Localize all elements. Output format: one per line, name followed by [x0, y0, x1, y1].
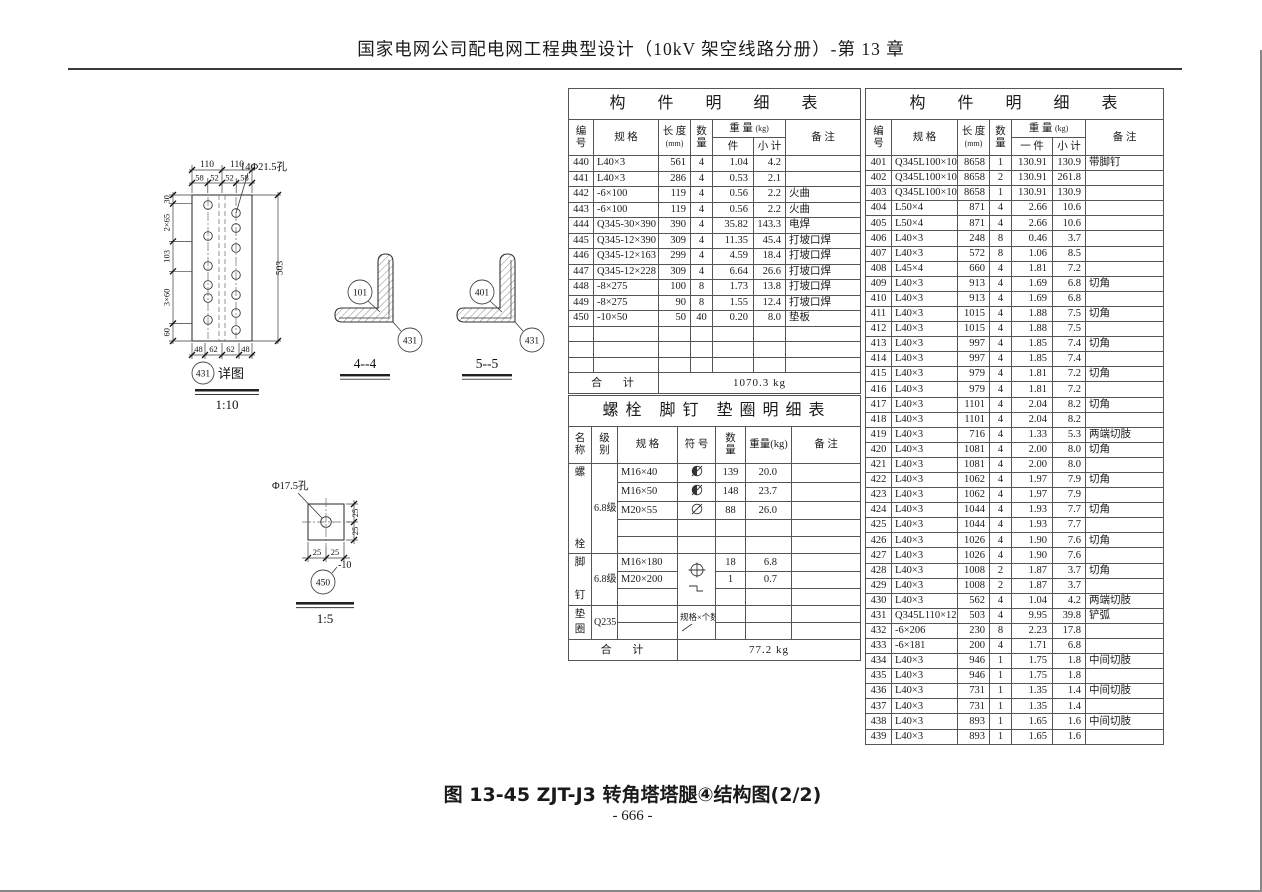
cell [754, 357, 786, 373]
table-row: 433-6×18120041.716.8 [866, 639, 1164, 654]
cell: Q345L100×10 [892, 171, 958, 186]
cell: 130.91 [1012, 171, 1053, 186]
cell: 429 [866, 578, 892, 593]
cell: 299 [659, 249, 691, 265]
cell: 997 [958, 352, 990, 367]
symbol-cell [678, 482, 716, 501]
cell: L40×3 [892, 714, 958, 729]
cell: L40×3 [892, 593, 958, 608]
total-label: 合 计 [569, 639, 678, 660]
cell: 2.04 [1012, 397, 1053, 412]
cell: 871 [958, 201, 990, 216]
table-row: 401Q345L100×1086581130.91130.9带脚钉 [866, 156, 1164, 171]
cell: L40×3 [594, 171, 659, 187]
cell [618, 588, 678, 605]
cell: 405 [866, 216, 892, 231]
cell: 打坡口焊 [786, 280, 861, 296]
cell: -8×275 [594, 280, 659, 296]
cell [792, 501, 861, 520]
cell: Q345-30×390 [594, 218, 659, 234]
svg-text:25: 25 [331, 547, 340, 557]
cell: 18.4 [754, 249, 786, 265]
cell: 1.65 [1012, 729, 1053, 744]
cell [1086, 352, 1164, 367]
cell: L40×3 [892, 246, 958, 261]
cell: 45.4 [754, 233, 786, 249]
cell: 5.3 [1053, 427, 1086, 442]
cell: L40×3 [892, 518, 958, 533]
cell: 428 [866, 563, 892, 578]
balloon-431: 431 [196, 370, 211, 380]
cell: 切角 [1086, 472, 1164, 487]
cell: 503 [958, 608, 990, 623]
cell: 1.75 [1012, 669, 1053, 684]
cell: 7.7 [1053, 503, 1086, 518]
svg-text:25: 25 [350, 509, 360, 518]
cell: 148 [716, 482, 746, 501]
cell: 4 [691, 218, 713, 234]
cell: -6×100 [594, 202, 659, 218]
cell: 426 [866, 533, 892, 548]
cell: 417 [866, 397, 892, 412]
cell: 871 [958, 216, 990, 231]
cell [786, 342, 861, 358]
cell: 两端切肢 [1086, 593, 1164, 608]
cell: 893 [958, 729, 990, 744]
cell: 407 [866, 246, 892, 261]
cell: 130.9 [1053, 156, 1086, 171]
cell: 731 [958, 699, 990, 714]
cell: Q345L110×12 [892, 608, 958, 623]
cell: 2.00 [1012, 457, 1053, 472]
cell: 8.0 [1053, 457, 1086, 472]
svg-text:52: 52 [225, 173, 234, 183]
cell [1086, 171, 1164, 186]
group-grade: 6.8级 [592, 554, 618, 605]
cell [1086, 699, 1164, 714]
cell: M16×180 [618, 554, 678, 571]
cell [716, 622, 746, 639]
cell: Q345-12×163 [594, 249, 659, 265]
cell: 7.2 [1053, 367, 1086, 382]
cell: L50×4 [892, 201, 958, 216]
total-value: 1070.3 kg [659, 373, 861, 394]
svg-text:62: 62 [209, 344, 218, 354]
cell: 8 [691, 280, 713, 296]
cell [786, 156, 861, 172]
cell: 419 [866, 427, 892, 442]
col-header: 件 [713, 138, 754, 156]
cell: 4 [990, 352, 1012, 367]
cell: 20.0 [746, 464, 792, 483]
cell: 1044 [958, 518, 990, 533]
cell: L40×3 [892, 548, 958, 563]
cell [1086, 488, 1164, 503]
cell: 35.82 [713, 218, 754, 234]
cell: 442 [569, 187, 594, 203]
cell: 449 [569, 295, 594, 311]
table-row: 440L40×356141.044.2 [569, 156, 861, 172]
svg-text:503: 503 [276, 261, 286, 276]
cell: 414 [866, 352, 892, 367]
cell: 0.20 [713, 311, 754, 327]
cell: M20×200 [618, 571, 678, 588]
cell: 7.5 [1053, 322, 1086, 337]
cell: 1.71 [1012, 639, 1053, 654]
table-row: 409L40×391341.696.8切角 [866, 276, 1164, 291]
cell: 309 [659, 264, 691, 280]
cell: 572 [958, 246, 990, 261]
table-row: 437L40×373111.351.4 [866, 699, 1164, 714]
cell: 1.55 [713, 295, 754, 311]
cell [792, 588, 861, 605]
cell [1086, 457, 1164, 472]
cell: 893 [958, 714, 990, 729]
cell: 中间切肢 [1086, 654, 1164, 669]
cell [659, 342, 691, 358]
cell: 390 [659, 218, 691, 234]
table-title: 螺栓 脚钉 垫圈明细表 [569, 396, 861, 427]
cell [786, 357, 861, 373]
cell: 130.91 [1012, 156, 1053, 171]
col-header: 重 量 (kg) [1012, 120, 1086, 138]
cell: 铲弧 [1086, 608, 1164, 623]
cell [716, 537, 746, 554]
cell: 4 [990, 337, 1012, 352]
cell: 434 [866, 654, 892, 669]
col-header: 重 量 (kg) [713, 120, 786, 138]
cell: 440 [569, 156, 594, 172]
table-row: 428L40×3100821.873.7切角 [866, 563, 1164, 578]
table-row: 435L40×394611.751.8 [866, 669, 1164, 684]
cell: 39.8 [1053, 608, 1086, 623]
cell: 4.59 [713, 249, 754, 265]
cell [1086, 578, 1164, 593]
cell: 409 [866, 276, 892, 291]
cell: 415 [866, 367, 892, 382]
cell: 4 [990, 503, 1012, 518]
cell: L40×3 [892, 382, 958, 397]
cell: 1.33 [1012, 427, 1053, 442]
cell: 1.90 [1012, 533, 1053, 548]
cell: 1081 [958, 442, 990, 457]
table-header-row: 编 号规 格长 度(mm)数 量重 量 (kg)备 注 [866, 120, 1164, 138]
cell [716, 520, 746, 537]
table-row: 438L40×389311.651.6中间切肢 [866, 714, 1164, 729]
cell: 436 [866, 684, 892, 699]
table-row: 415L40×397941.817.2切角 [866, 367, 1164, 382]
cell: 4 [990, 442, 1012, 457]
cell: 17.8 [1053, 623, 1086, 638]
svg-text:101: 101 [353, 289, 368, 299]
cell [1086, 291, 1164, 306]
cell: 4 [990, 639, 1012, 654]
cell: 424 [866, 503, 892, 518]
bolt-symbol-icon [689, 464, 705, 478]
table-row: 446Q345-12×16329944.5918.4打坡口焊 [569, 249, 861, 265]
cell: L40×3 [892, 533, 958, 548]
cell: 2.66 [1012, 216, 1053, 231]
cell: 4.2 [754, 156, 786, 172]
cell: 切角 [1086, 337, 1164, 352]
col-header: 数 量 [716, 427, 746, 464]
col-header: 编 号 [569, 120, 594, 156]
cell: M16×40 [618, 464, 678, 483]
cell: 1 [716, 571, 746, 588]
cell [594, 357, 659, 373]
cell: 416 [866, 382, 892, 397]
cell: 913 [958, 276, 990, 291]
cell: 4 [990, 322, 1012, 337]
cell: 1.97 [1012, 472, 1053, 487]
cell: 447 [569, 264, 594, 280]
col-header: 重量(kg) [746, 427, 792, 464]
cell: 1 [990, 186, 1012, 201]
cell: 带脚钉 [1086, 156, 1164, 171]
cell: 1.93 [1012, 503, 1053, 518]
cell: 1044 [958, 503, 990, 518]
col-header: 规 格 [594, 120, 659, 156]
drawing-sheet: 国家电网公司配电网工程典型设计（10kV 架空线路分册）-第 13 章 14Φ2… [0, 0, 1262, 892]
cell: 4 [990, 488, 1012, 503]
svg-text:60: 60 [162, 328, 172, 337]
table-row: 443-6×10011940.562.2火曲 [569, 202, 861, 218]
cell: L40×3 [892, 397, 958, 412]
cell: -10×50 [594, 311, 659, 327]
table-row: 424L40×3104441.937.7切角 [866, 503, 1164, 518]
cell [691, 342, 713, 358]
cell: M20×55 [618, 501, 678, 520]
symbol-cell [678, 554, 716, 605]
detail-450-label: 450 -10 1:5 [296, 560, 354, 626]
table-row: 418L40×3110142.048.2 [866, 412, 1164, 427]
cell: 7.9 [1053, 472, 1086, 487]
col-header: 数 量 [990, 120, 1012, 156]
cell: 1.93 [1012, 518, 1053, 533]
cell: 286 [659, 171, 691, 187]
cell: 1026 [958, 548, 990, 563]
cell: 4 [990, 457, 1012, 472]
cell: 2.1 [754, 171, 786, 187]
cell [746, 588, 792, 605]
cell: -8×275 [594, 295, 659, 311]
cell: 1.73 [713, 280, 754, 296]
cell: 8.0 [754, 311, 786, 327]
cell: 切角 [1086, 397, 1164, 412]
cell [716, 588, 746, 605]
cell: L40×3 [892, 669, 958, 684]
cell: 1101 [958, 412, 990, 427]
cell: 0.56 [713, 202, 754, 218]
cell: 130.91 [1012, 186, 1053, 201]
svg-text:52: 52 [210, 173, 219, 183]
bolt-symbol-icon [689, 502, 705, 516]
plate-outline [192, 195, 252, 341]
cell: 433 [866, 639, 892, 654]
table-row: 407L40×357281.068.5 [866, 246, 1164, 261]
table-row: 432-6×20623082.2317.8 [866, 623, 1164, 638]
svg-text:110: 110 [230, 160, 244, 170]
cell: 411 [866, 306, 892, 321]
cell: 716 [958, 427, 990, 442]
cell: 1.69 [1012, 276, 1053, 291]
cell: 1.69 [1012, 291, 1053, 306]
cell: 4 [990, 291, 1012, 306]
svg-text:30: 30 [162, 195, 172, 204]
cell: 4 [990, 427, 1012, 442]
svg-text:103: 103 [162, 250, 172, 263]
cell: L45×4 [892, 261, 958, 276]
cell: 8 [990, 231, 1012, 246]
cell: L40×3 [892, 729, 958, 744]
cell: 1 [990, 156, 1012, 171]
cell: 1081 [958, 457, 990, 472]
cell [716, 605, 746, 622]
cell [792, 520, 861, 537]
table-row: 419L40×371641.335.3两端切肢 [866, 427, 1164, 442]
col-header: 小 计 [754, 138, 786, 156]
total-row: 合 计77.2 kg [569, 639, 861, 660]
cell: 432 [866, 623, 892, 638]
cell: 7.6 [1053, 533, 1086, 548]
table-title: 构 件 明 细 表 [866, 89, 1164, 120]
cell: 1.6 [1053, 729, 1086, 744]
page-number: - 666 - [85, 808, 1180, 825]
cell [1086, 382, 1164, 397]
cell: 6.64 [713, 264, 754, 280]
cell: 10.6 [1053, 201, 1086, 216]
scale-label: 1:10 [215, 397, 238, 412]
col-header: 长 度(mm) [958, 120, 990, 156]
table-row: 423L40×3106241.977.9 [866, 488, 1164, 503]
cell [594, 326, 659, 342]
cell [569, 342, 594, 358]
col-header: 级 别 [592, 427, 618, 464]
cell: 230 [958, 623, 990, 638]
cell: Q345L100×10 [892, 156, 958, 171]
cell: 421 [866, 457, 892, 472]
cell: 火曲 [786, 202, 861, 218]
cell [1086, 518, 1164, 533]
cell [618, 605, 678, 622]
cell [792, 482, 861, 501]
cell: 90 [659, 295, 691, 311]
hole-label: Φ17.5孔 [272, 479, 309, 492]
hole-label: 14Φ21.5孔 [240, 160, 288, 173]
cell: 450 [569, 311, 594, 327]
cell: 139 [716, 464, 746, 483]
svg-text:431: 431 [525, 337, 540, 347]
cell: 4 [990, 201, 1012, 216]
cell: 248 [958, 231, 990, 246]
cell: 420 [866, 442, 892, 457]
document-title: 国家电网公司配电网工程典型设计（10kV 架空线路分册）-第 13 章 [0, 36, 1262, 61]
cell [713, 357, 754, 373]
cell [746, 520, 792, 537]
cell: L40×3 [892, 367, 958, 382]
cell: 4 [990, 397, 1012, 412]
cell: L40×3 [892, 427, 958, 442]
detail-431-drawing: 14Φ21.5孔 110 110 58 52 52 58 [95, 143, 345, 443]
cell: 7.6 [1053, 548, 1086, 563]
table-row: 441L40×328640.532.1 [569, 171, 861, 187]
total-value: 77.2 kg [678, 639, 861, 660]
cell: 130.9 [1053, 186, 1086, 201]
cell: 1.90 [1012, 548, 1053, 563]
cell [746, 622, 792, 639]
symbol-note: 规格×个数 [678, 605, 716, 639]
cell [713, 326, 754, 342]
table-row: 404L50×487142.6610.6 [866, 201, 1164, 216]
group-name: 螺栓 [569, 464, 592, 554]
cell: 打坡口焊 [786, 249, 861, 265]
cell [1086, 412, 1164, 427]
table-title-row: 螺栓 脚钉 垫圈明细表 [569, 396, 861, 427]
cell: 427 [866, 548, 892, 563]
svg-text:401: 401 [475, 289, 490, 299]
cell: 4 [990, 472, 1012, 487]
cell [792, 464, 861, 483]
section-4-4: 101 431 4--4 [335, 254, 422, 380]
table-row [569, 342, 861, 358]
cell [786, 326, 861, 342]
table-row: 447Q345-12×22830946.6426.6打坡口焊 [569, 264, 861, 280]
parts-table-right: 构 件 明 细 表编 号规 格长 度(mm)数 量重 量 (kg)备 注一 件小… [865, 88, 1164, 745]
cell: 1008 [958, 578, 990, 593]
cell [786, 171, 861, 187]
cell: 444 [569, 218, 594, 234]
cell: 4 [990, 276, 1012, 291]
cell: 418 [866, 412, 892, 427]
cell: 401 [866, 156, 892, 171]
cell: 9.95 [1012, 608, 1053, 623]
cell: 8.0 [1053, 442, 1086, 457]
cell [569, 357, 594, 373]
table-row: 421L40×3108142.008.0 [866, 457, 1164, 472]
cell: L40×3 [892, 412, 958, 427]
svg-text:58: 58 [195, 173, 204, 183]
cell [659, 357, 691, 373]
cell: 431 [866, 608, 892, 623]
cell: 1 [990, 684, 1012, 699]
cell: 143.3 [754, 218, 786, 234]
cell [1086, 216, 1164, 231]
cell: 660 [958, 261, 990, 276]
cell: 446 [569, 249, 594, 265]
cell: 2 [990, 563, 1012, 578]
svg-text:48: 48 [194, 344, 203, 354]
table-row: 408L45×466041.817.2 [866, 261, 1164, 276]
cell: 12.4 [754, 295, 786, 311]
cell: 422 [866, 472, 892, 487]
cell: 435 [866, 669, 892, 684]
cell [594, 342, 659, 358]
cell: 6.8 [1053, 276, 1086, 291]
svg-text:25: 25 [350, 527, 360, 536]
cell: 4 [691, 233, 713, 249]
cell: 119 [659, 187, 691, 203]
table-row: 螺栓6.8级M16×4013920.0 [569, 464, 861, 483]
symbol-cell [678, 520, 716, 537]
table-row: 442-6×10011940.562.2火曲 [569, 187, 861, 203]
cell [1086, 322, 1164, 337]
table-row: 412L40×3101541.887.5 [866, 322, 1164, 337]
dimensions-left: 30 2×65 103 3×60 60 [162, 192, 193, 344]
cell: 26.0 [746, 501, 792, 520]
table-row: 427L40×3102641.907.6 [866, 548, 1164, 563]
cell: 8 [990, 623, 1012, 638]
cell: 997 [958, 337, 990, 352]
